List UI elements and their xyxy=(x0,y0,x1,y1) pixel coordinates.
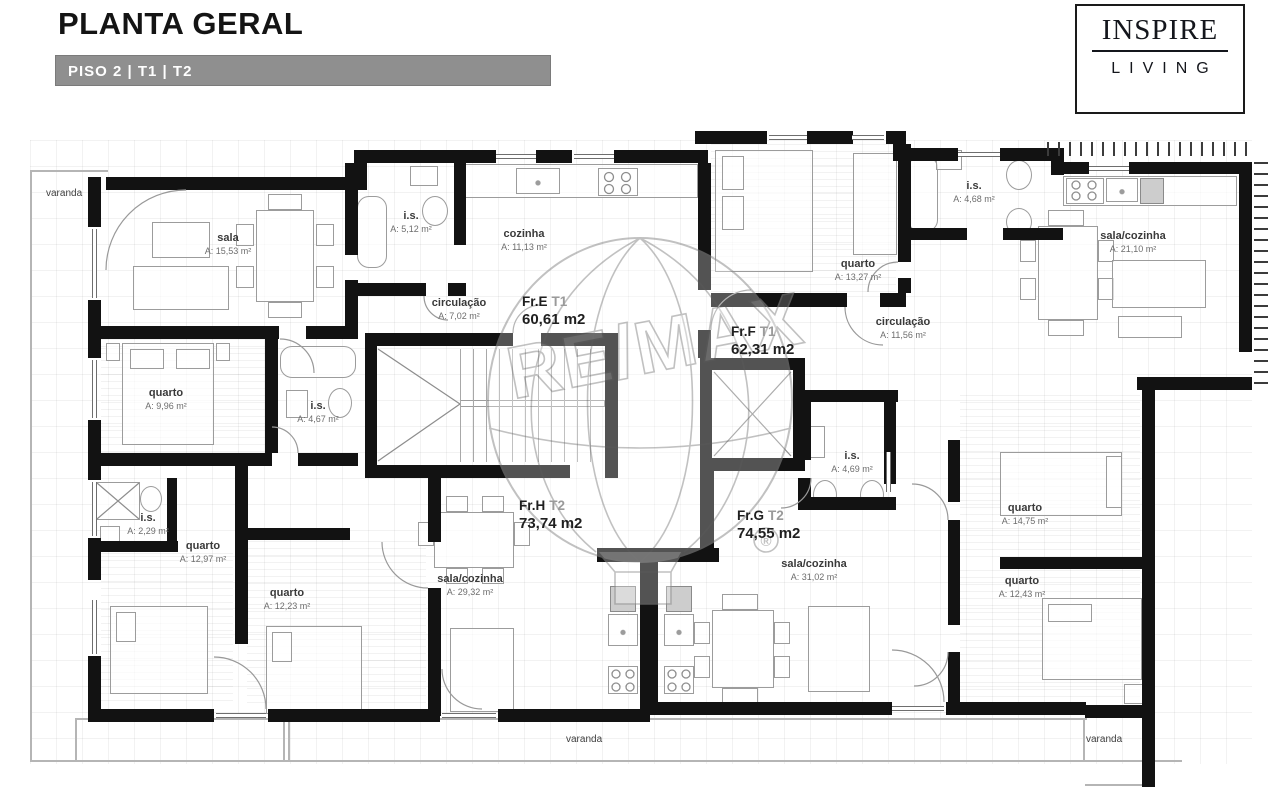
wall xyxy=(1142,390,1155,787)
window xyxy=(92,360,97,418)
window xyxy=(574,154,614,159)
pillow xyxy=(116,612,136,642)
stove xyxy=(664,666,694,694)
wall xyxy=(898,278,911,293)
chair xyxy=(316,224,334,246)
wall xyxy=(1129,162,1251,174)
balcony-outline xyxy=(30,170,108,172)
wall xyxy=(700,370,712,470)
stair-tread xyxy=(486,349,487,462)
pillow xyxy=(176,349,210,369)
wall xyxy=(88,541,178,552)
balcony-label-bottom-center: varanda xyxy=(566,734,602,745)
wall xyxy=(948,520,960,560)
wall xyxy=(905,228,967,240)
wall xyxy=(948,569,960,625)
wall xyxy=(648,702,892,715)
wall xyxy=(886,131,906,144)
logo-line2: LIVING xyxy=(1102,60,1217,78)
wall xyxy=(365,333,513,346)
room-label-salacozinha-g: sala/cozinhaA: 31,02 m² xyxy=(781,558,846,583)
wall xyxy=(807,131,853,144)
pillow xyxy=(1048,604,1092,622)
wall xyxy=(798,390,898,402)
wall xyxy=(265,339,278,453)
wall xyxy=(880,293,906,307)
kitchen-sink xyxy=(664,614,694,646)
chair xyxy=(1048,320,1084,336)
chair xyxy=(446,496,468,512)
railing xyxy=(1047,142,1251,156)
room-label-cozinha-e: cozinhaA: 11,13 m² xyxy=(501,228,547,253)
bathtub xyxy=(280,346,356,378)
pillow xyxy=(272,632,292,662)
chair xyxy=(774,656,790,678)
fridge xyxy=(666,586,692,612)
kitchen-counter xyxy=(460,164,698,198)
wall xyxy=(1000,557,1154,569)
wall xyxy=(948,652,960,714)
wall xyxy=(235,466,248,644)
stair-tread xyxy=(525,349,526,462)
stair-tread xyxy=(564,349,565,462)
sofa xyxy=(450,628,514,712)
window xyxy=(92,229,97,298)
wall xyxy=(698,330,711,358)
page-title: PLANTA GERAL xyxy=(58,6,303,42)
window xyxy=(442,713,496,718)
balcony-outline xyxy=(283,718,285,762)
wall xyxy=(88,177,101,227)
kitchen-sink xyxy=(1106,178,1138,202)
room-label-is-h: i.s.A: 2,29 m² xyxy=(127,512,169,537)
chair xyxy=(694,622,710,644)
window xyxy=(92,482,97,536)
railing xyxy=(1254,162,1268,392)
wall xyxy=(298,453,358,466)
stair-tread xyxy=(499,349,500,462)
wall xyxy=(101,326,279,339)
window xyxy=(496,154,536,159)
stair-tread xyxy=(577,349,578,462)
wall xyxy=(306,326,358,339)
wall xyxy=(700,470,714,550)
stove xyxy=(608,666,638,694)
stair-tread xyxy=(551,349,552,462)
sofa xyxy=(133,266,229,310)
stair-tread xyxy=(512,349,513,462)
logo-divider xyxy=(1092,50,1228,52)
wall xyxy=(948,440,960,502)
wall xyxy=(798,497,896,510)
room-label-is-f: i.s.A: 4,68 m² xyxy=(953,180,995,205)
wall xyxy=(536,150,572,163)
wall xyxy=(898,144,911,262)
wall xyxy=(695,131,767,144)
wall xyxy=(352,283,426,296)
floor-subtitle-bar: PISO 2 | T1 | T2 xyxy=(55,55,551,86)
wall xyxy=(498,709,650,722)
stair-tread xyxy=(590,349,591,462)
room-label-salacozinha-f: sala/cozinhaA: 21,10 m² xyxy=(1100,230,1165,255)
wall xyxy=(365,346,377,466)
wall xyxy=(614,150,708,163)
unit-label-fr-g: Fr.GT2 74,55 m2 xyxy=(737,506,800,543)
window xyxy=(216,713,266,718)
stove xyxy=(598,168,638,196)
window xyxy=(958,152,1000,157)
room-label-quarto-h1: quartoA: 12,97 m² xyxy=(180,540,227,565)
balcony-outline xyxy=(30,170,32,762)
chair xyxy=(316,266,334,288)
stair-tread xyxy=(538,349,539,462)
wall xyxy=(711,293,847,307)
wall xyxy=(345,163,358,255)
kitchen-sink xyxy=(608,614,638,646)
wall xyxy=(428,588,441,716)
wall xyxy=(268,709,440,722)
wall xyxy=(948,557,960,569)
room-label-quarto-f: quartoA: 13,27 m² xyxy=(835,258,882,283)
bathtub xyxy=(357,196,387,268)
logo-line1: INSPIRE xyxy=(1102,14,1219,47)
nightstand xyxy=(106,343,120,361)
chair xyxy=(1048,210,1084,226)
stair-rail xyxy=(460,400,605,407)
chair xyxy=(722,594,758,610)
wall xyxy=(88,453,272,466)
dining-table xyxy=(434,512,514,568)
wall xyxy=(906,148,958,161)
toilet xyxy=(140,486,162,512)
washbasin xyxy=(410,166,438,186)
kitchen-sink xyxy=(516,168,560,194)
pillow xyxy=(722,196,744,230)
wall xyxy=(106,177,355,190)
dining-table xyxy=(1038,226,1098,320)
window xyxy=(886,452,891,492)
floor-plan-page: PLANTA GERAL PISO 2 | T1 | T2 INSPIRE LI… xyxy=(0,0,1278,800)
wall xyxy=(640,562,658,715)
window xyxy=(92,600,97,654)
room-label-quarto-g2: quartoA: 12,43 m² xyxy=(999,575,1046,600)
wall xyxy=(365,465,570,478)
chair xyxy=(1020,278,1036,300)
fridge xyxy=(1140,178,1164,204)
wall xyxy=(354,150,496,163)
wall xyxy=(1137,377,1252,390)
room-label-salacozinha-h: sala/cozinhaA: 29,32 m² xyxy=(437,573,502,598)
wall xyxy=(88,709,214,722)
window xyxy=(852,135,884,140)
balcony-outline xyxy=(288,718,290,762)
nightstand xyxy=(216,343,230,361)
stair-tread xyxy=(473,349,474,462)
room-label-quarto-e: quartoA: 9,96 m² xyxy=(145,387,187,412)
wall xyxy=(541,333,618,346)
chair xyxy=(268,194,302,210)
window xyxy=(1089,166,1129,171)
stair-tread xyxy=(460,349,461,462)
chair xyxy=(236,266,254,288)
dining-table xyxy=(256,210,314,302)
wall xyxy=(88,300,101,358)
room-label-circulacao-e: circulaçãoA: 7,02 m² xyxy=(432,297,486,322)
chair xyxy=(694,656,710,678)
wall xyxy=(448,283,466,296)
balcony-label-bottom-right: varanda xyxy=(1086,734,1122,745)
room-label-quarto-h2: quartoA: 12,23 m² xyxy=(264,587,311,612)
unit-label-fr-h: Fr.HT2 73,74 m2 xyxy=(519,496,582,533)
sofa xyxy=(1112,260,1206,308)
wall xyxy=(242,528,350,540)
chair xyxy=(482,496,504,512)
balcony-label-top-left: varanda xyxy=(46,188,82,199)
wall xyxy=(605,346,618,478)
fridge xyxy=(610,586,636,612)
balcony-outline xyxy=(30,760,1182,762)
toilet xyxy=(1006,160,1032,190)
wall xyxy=(698,163,711,290)
wall xyxy=(1239,162,1252,352)
room-label-sala-e: salaA: 15,53 m² xyxy=(205,232,252,257)
tv-unit xyxy=(1118,316,1182,338)
sofa xyxy=(808,606,870,692)
chair xyxy=(774,622,790,644)
coffee-table xyxy=(152,222,210,258)
unit-label-fr-f: Fr.FT1 62,31 m2 xyxy=(731,322,794,359)
wall xyxy=(700,458,805,471)
balcony-outline xyxy=(1083,718,1085,762)
pillow xyxy=(722,156,744,190)
wall xyxy=(1085,705,1155,718)
wall xyxy=(1003,228,1063,240)
wall xyxy=(700,358,805,370)
wardrobe xyxy=(853,153,897,255)
balcony-outline xyxy=(75,718,77,762)
room-label-is-g: i.s.A: 4,69 m² xyxy=(831,450,873,475)
window xyxy=(892,706,944,711)
wall xyxy=(946,702,1086,715)
window xyxy=(769,135,807,140)
wall xyxy=(798,402,811,460)
wall xyxy=(597,548,719,562)
stove xyxy=(1066,178,1104,204)
room-label-is-e2: i.s.A: 4,67 m² xyxy=(297,400,339,425)
chair xyxy=(268,302,302,318)
room-label-is-e: i.s.A: 5,12 m² xyxy=(390,210,432,235)
wall xyxy=(1063,162,1089,174)
pillow xyxy=(130,349,164,369)
wall xyxy=(88,420,101,480)
room-label-quarto-g1: quartoA: 14,75 m² xyxy=(1002,502,1049,527)
room-label-circulacao-f: circulaçãoA: 11,56 m² xyxy=(876,316,930,341)
inspire-living-logo: INSPIRE LIVING xyxy=(1075,4,1245,114)
pillow xyxy=(1106,456,1122,508)
wall xyxy=(454,163,466,245)
bathtub xyxy=(908,156,938,232)
unit-label-fr-e: Fr.ET1 60,61 m2 xyxy=(522,292,585,329)
chair xyxy=(1020,240,1036,262)
dining-table xyxy=(712,610,774,688)
